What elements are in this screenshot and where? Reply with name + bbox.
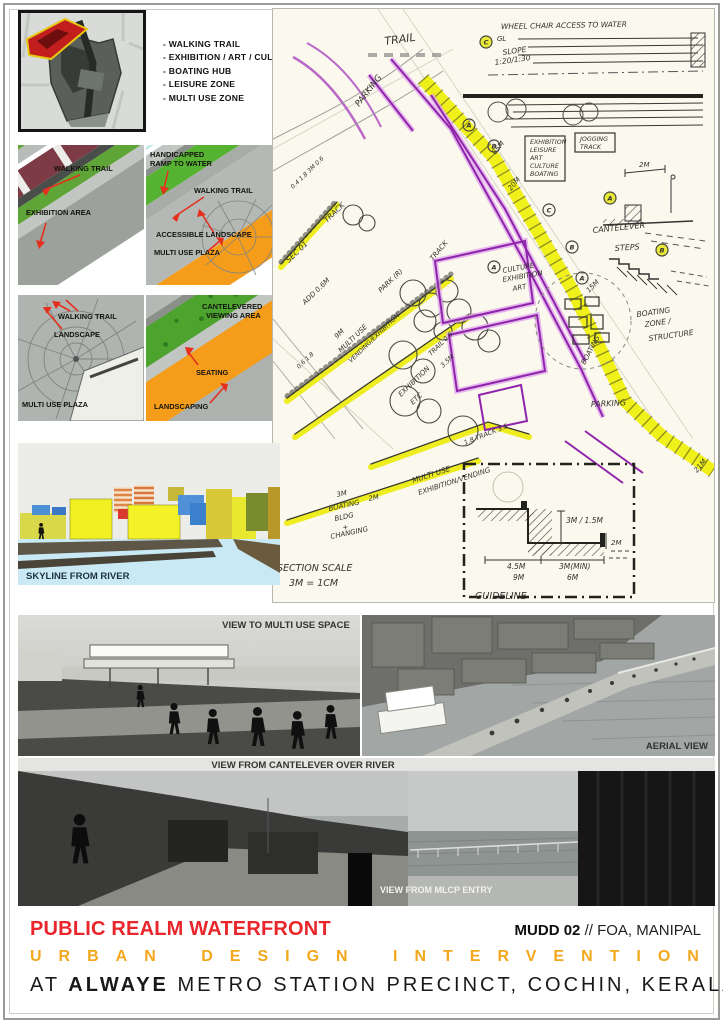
sketch-label-dims-a: 0.4 1.8 3M 0.6	[290, 155, 326, 190]
render-caption-mlcp: VIEW FROM MLCP ENTRY	[380, 885, 493, 895]
sketch-label-guideline: GUIDELINE	[475, 591, 527, 602]
render-caption-multi-use: VIEW TO MULTI USE SPACE	[222, 620, 350, 631]
plan-handicapped-ramp: HANDICAPPED RAMP TO WATER WALKING TRAIL …	[146, 145, 272, 285]
sketch-label-section-scale-1: SECTION SCALE	[277, 563, 352, 574]
svg-text:A: A	[465, 121, 471, 129]
sketch-label-dim-3m-15m: 3M / 1.5M	[566, 516, 603, 525]
label-walking-trail: WALKING TRAIL	[54, 164, 113, 173]
label-accessible-landscape: ACCESSIBLE LANDSCAPE	[156, 230, 252, 239]
title-block: PUBLIC REALM WATERFRONT MUDD 02 // FOA, …	[18, 912, 705, 1012]
sketch-label-cantelever: CANTELEVER	[592, 221, 645, 235]
sketch-marker-a-cantelever: A	[604, 192, 616, 204]
studio-credit-code: MUDD 02	[515, 922, 581, 939]
svg-text:C: C	[547, 206, 552, 214]
label-walking-trail: WALKING TRAIL	[58, 312, 117, 321]
sketch-label-dim-9m: 9M	[333, 327, 346, 340]
sketch-label-jogging-1: JOGGING	[578, 136, 608, 143]
label-landscaping: LANDSCAPING	[154, 402, 208, 411]
sketch-label-boating-bldg-4: CHANGING	[330, 525, 370, 541]
sketch-marker-c-top: C	[480, 36, 492, 48]
sketch-label-jogging-2: TRACK	[580, 144, 602, 151]
sketch-label-parking-mid: PARKING	[591, 398, 627, 409]
sketch-label-wheelchair-access: WHEEL CHAIR ACCESS TO WATER	[501, 20, 627, 31]
svg-text:A: A	[606, 194, 612, 202]
studio-credit: MUDD 02 // FOA, MANIPAL	[515, 922, 701, 939]
sketch-label-zone-box-2: LEISURE	[530, 147, 556, 154]
label-landscape: LANDSCAPE	[54, 330, 100, 339]
svg-text:B: B	[492, 142, 497, 150]
plan-multi-use-plaza: WALKING TRAIL LANDSCAPE MULTI USE PLAZA	[18, 295, 144, 421]
sketch-label-dim-3m-min: 3M(MIN)	[559, 562, 590, 571]
sketch-label-boating-zone-2: ZONE /	[643, 316, 673, 329]
location-alwaye: ALWAYE	[68, 974, 169, 996]
sketch-label-add-06m: ADD 0.6M	[300, 276, 331, 307]
sketch-label-trail: TRAIL	[384, 31, 417, 48]
project-title: PUBLIC REALM WATERFRONT	[30, 918, 331, 941]
label-walking-trail: WALKING TRAIL	[194, 186, 253, 195]
sketch-label-boating-bldg-2: BLDG	[334, 511, 355, 523]
label-cantelevered: CANTELEVERED	[202, 302, 263, 311]
location-rest: METRO STATION PRECINCT, COCHIN, KERALA	[169, 974, 723, 996]
concept-plan-sketch: TRAILWHEEL CHAIR ACCESS TO WATERGLSLOPE1…	[272, 8, 715, 603]
render-caption-aerial: AERIAL VIEW	[646, 741, 708, 752]
sketch-label-culture-3: ART	[511, 283, 528, 294]
sketch-label-dim-3m: 3M	[336, 489, 348, 499]
presentation-board: - WALKING TRAIL - EXHIBITION / ART / CUL…	[0, 0, 723, 1023]
site-location-map	[18, 10, 146, 132]
svg-text:C: C	[484, 38, 489, 46]
sketch-graphic: TRAILWHEEL CHAIR ACCESS TO WATERGLSLOPE1…	[273, 9, 714, 602]
sketch-label-zone-box-4: CULTURE	[530, 163, 559, 170]
project-location: AT ALWAYE METRO STATION PRECINCT, COCHIN…	[30, 974, 723, 997]
label-handicapped: HANDICAPPED	[150, 150, 205, 159]
sketch-label-boating-zone-3: STRUCTURE	[648, 328, 694, 343]
label-viewing-area: VIEWING AREA	[206, 311, 261, 320]
sketch-label-section-scale-2: 3M = 1CM	[289, 578, 338, 589]
sketch-marker-b-steps: B	[656, 244, 668, 256]
render-aerial-view: AERIAL VIEW	[362, 615, 715, 756]
render-caption-cantelever: VIEW FROM CANTELEVER OVER RIVER	[211, 760, 394, 771]
sketch-marker-c-band2: C	[543, 204, 555, 216]
label-ramp-to-water: RAMP TO WATER	[150, 159, 213, 168]
sketch-label-zone-box-5: BOATING	[530, 171, 559, 178]
label-multi-use-plaza: MULTI USE PLAZA	[154, 248, 221, 257]
sketch-label-dim-6m: 6M	[567, 573, 579, 582]
sketch-marker-a-band3: A	[576, 272, 588, 284]
svg-text:A: A	[490, 263, 496, 271]
sketch-label-dim-2m-cantelever: 2M	[639, 161, 650, 169]
sketch-label-slope-ratio: 1:20/1:30	[494, 53, 531, 67]
sketch-label-exhibition-etc-2: ETC	[409, 391, 424, 406]
plan-exhibition-area: WALKING TRAIL EXHIBITION AREA	[18, 145, 144, 285]
svg-text:A: A	[578, 274, 584, 282]
svg-text:B: B	[570, 243, 575, 251]
sketch-label-dim-2m-b: 2M	[368, 493, 380, 503]
label-multi-use-plaza: MULTI USE PLAZA	[22, 400, 89, 409]
sketch-label-steps: STEPS	[615, 242, 640, 253]
label-exhibition-area: EXHIBITION AREA	[26, 208, 92, 217]
svg-text:B: B	[660, 246, 665, 254]
studio-credit-school: // FOA, MANIPAL	[580, 922, 701, 939]
sketch-label-dim-9m-b: 9M	[513, 573, 525, 582]
skyline-massing-view: SKYLINE FROM RIVER	[18, 443, 280, 585]
sketch-label-boating-bldg-1: BOATING	[328, 498, 361, 513]
sketch-label-gl: GL	[497, 35, 506, 43]
sketch-label-dim-2m-c: 2M	[611, 539, 622, 547]
skyline-caption: SKYLINE FROM RIVER	[26, 571, 130, 582]
project-subtitle: URBAN DESIGN INTERVENTION	[30, 948, 716, 966]
render-multi-use-space: VIEW TO MULTI USE SPACE	[18, 615, 360, 756]
site-map-graphic	[21, 13, 143, 129]
render-strip-bottom: VIEW FROM CANTELEVER OVER RIVER VIEW FRO…	[18, 758, 715, 906]
plan-cantelevered-viewing: CANTELEVERED VIEWING AREA SEATING LANDSC…	[146, 295, 272, 421]
sketch-label-zone-box-3: ART	[529, 155, 544, 162]
sketch-marker-b-band2: B	[566, 241, 578, 253]
sketch-label-dim-45m: 4.5M	[507, 562, 526, 571]
label-seating: SEATING	[196, 368, 229, 377]
sketch-label-zone-box-1: EXHIBITION	[530, 139, 567, 146]
sketch-marker-a-band2: A	[488, 261, 500, 273]
location-prefix: AT	[30, 974, 68, 996]
